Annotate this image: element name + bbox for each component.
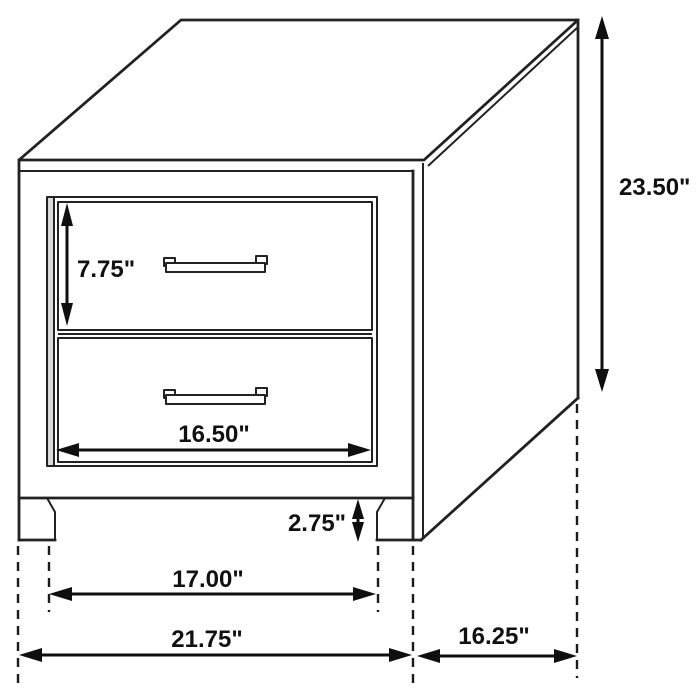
handle-bar [166, 395, 265, 404]
dim-leg-span-label: 17.00" [172, 566, 243, 593]
dim-drawer-width-label: 16.50" [178, 421, 249, 448]
diagram-canvas: 23.50" 7.75" 16.50" 2.75" [0, 0, 700, 700]
dim-base-height: 2.75" [288, 499, 364, 542]
arrowhead-right-icon [353, 587, 376, 601]
arrowhead-right-icon [554, 649, 577, 663]
dim-depth-label: 16.25" [458, 623, 529, 650]
arrowhead-left-icon [417, 649, 440, 663]
arrowhead-down-icon [352, 522, 364, 542]
dim-height-label: 23.50" [619, 174, 690, 201]
arrowhead-right-icon [389, 648, 412, 662]
arrowhead-up-icon [352, 499, 364, 519]
arrowhead-left-icon [49, 587, 72, 601]
arrowhead-down-icon [595, 369, 609, 392]
top-face [19, 20, 578, 160]
dim-depth: 16.25" [417, 623, 577, 663]
dim-height: 23.50" [595, 16, 690, 392]
dim-overall-width-label: 21.75" [171, 626, 242, 653]
right-leg-inner-edge [377, 498, 385, 540]
arrowhead-up-icon [595, 16, 609, 39]
arrowhead-left-icon [19, 648, 42, 662]
handle-bar [166, 263, 265, 272]
dim-drawer-height-label: 7.75" [77, 256, 135, 283]
dim-overall-width: 21.75" [19, 626, 412, 662]
dim-base-height-label: 2.75" [288, 510, 346, 537]
nightstand-dimension-diagram: 23.50" 7.75" 16.50" 2.75" [0, 0, 700, 700]
left-leg-inner-edge [47, 498, 55, 540]
side-panel-bottom-edge [421, 398, 578, 540]
dim-leg-span: 17.00" [49, 566, 376, 601]
